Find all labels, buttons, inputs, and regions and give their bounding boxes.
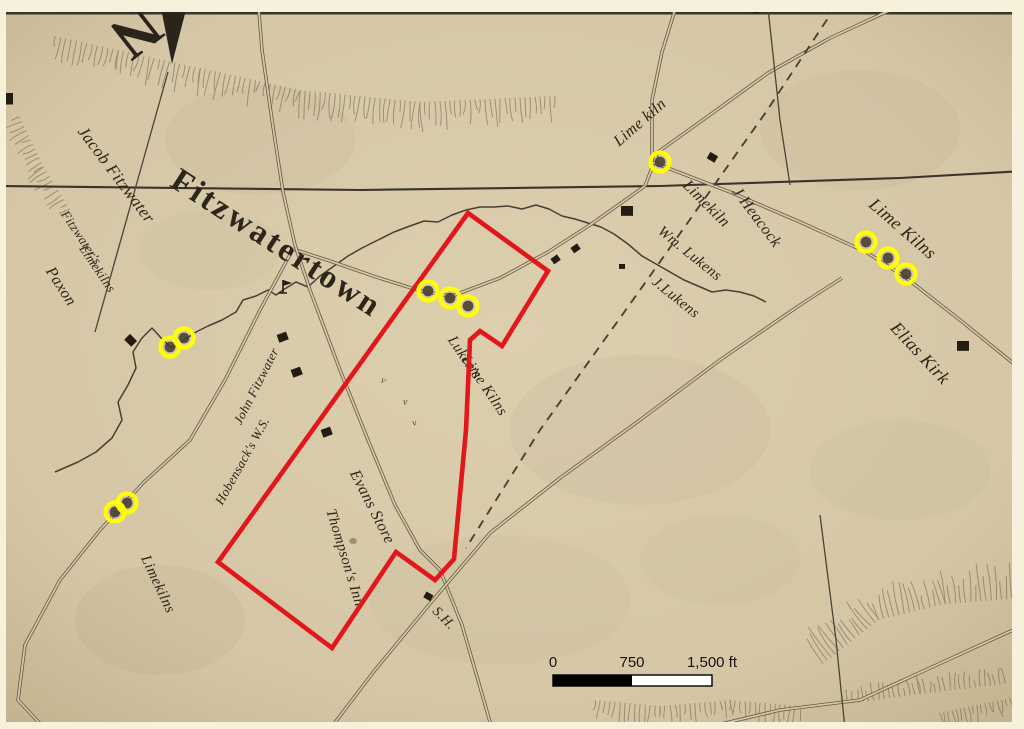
limekiln-dot: [445, 293, 456, 304]
building-marker: [621, 206, 633, 216]
limekiln-dot: [901, 269, 912, 280]
limekiln-dot: [463, 301, 474, 312]
scale-bar-label-start: 0: [549, 654, 557, 671]
map-canvas: vvvJacob FitzwaterFitzwatertownFitzwater…: [0, 0, 1024, 729]
paper-stain: [370, 535, 630, 665]
scale-bar-left-segment: [553, 675, 632, 686]
building-marker: [957, 341, 969, 351]
map-content-layer: vvvJacob FitzwaterFitzwatertownFitzwater…: [0, 0, 1024, 729]
map-speck: v: [403, 397, 408, 408]
limekiln-dot: [861, 237, 872, 248]
limekiln-dot: [655, 157, 666, 168]
paper-stain: [640, 515, 800, 605]
annotated-historical-map: vvvJacob FitzwaterFitzwatertownFitzwater…: [0, 0, 1024, 729]
building-marker: [619, 264, 625, 269]
paper-stain: [760, 70, 960, 190]
paper-stain: [810, 420, 990, 520]
paper-stain: [349, 538, 357, 544]
limekiln-dot: [423, 286, 434, 297]
limekiln-dot: [883, 253, 894, 264]
scale-bar-label-end: 1,500 ft: [687, 654, 738, 671]
scale-bar-label-mid: 750: [619, 654, 644, 671]
paper-stain: [510, 355, 770, 505]
